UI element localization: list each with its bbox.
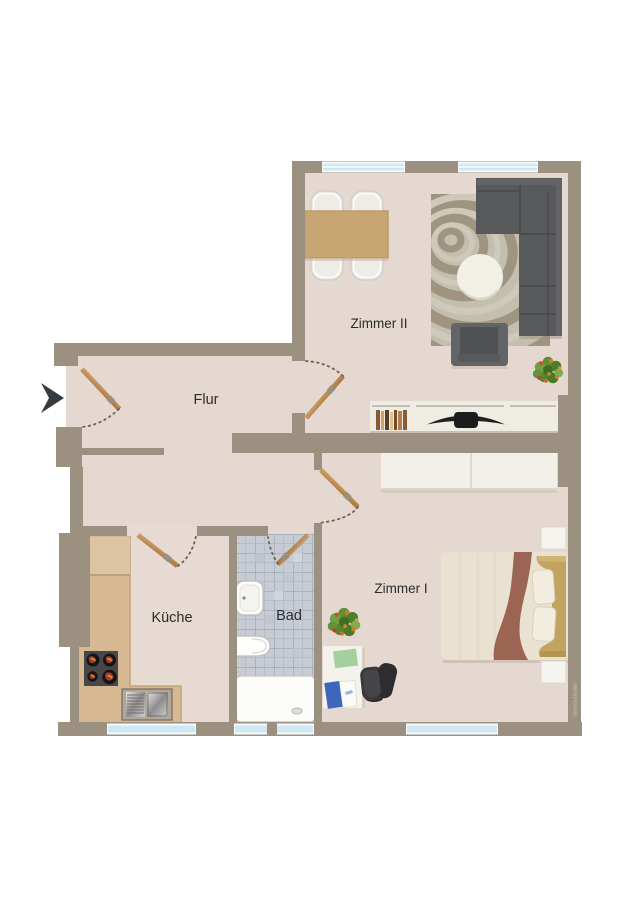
svg-text:Bad: Bad [276, 608, 302, 624]
svg-text:Zimmer I: Zimmer I [374, 581, 427, 596]
svg-text:Flur: Flur [194, 392, 219, 408]
svg-text:Küche: Küche [151, 610, 192, 626]
svg-text:immoviewer: immoviewer [572, 681, 579, 717]
svg-text:Zimmer II: Zimmer II [351, 316, 408, 331]
